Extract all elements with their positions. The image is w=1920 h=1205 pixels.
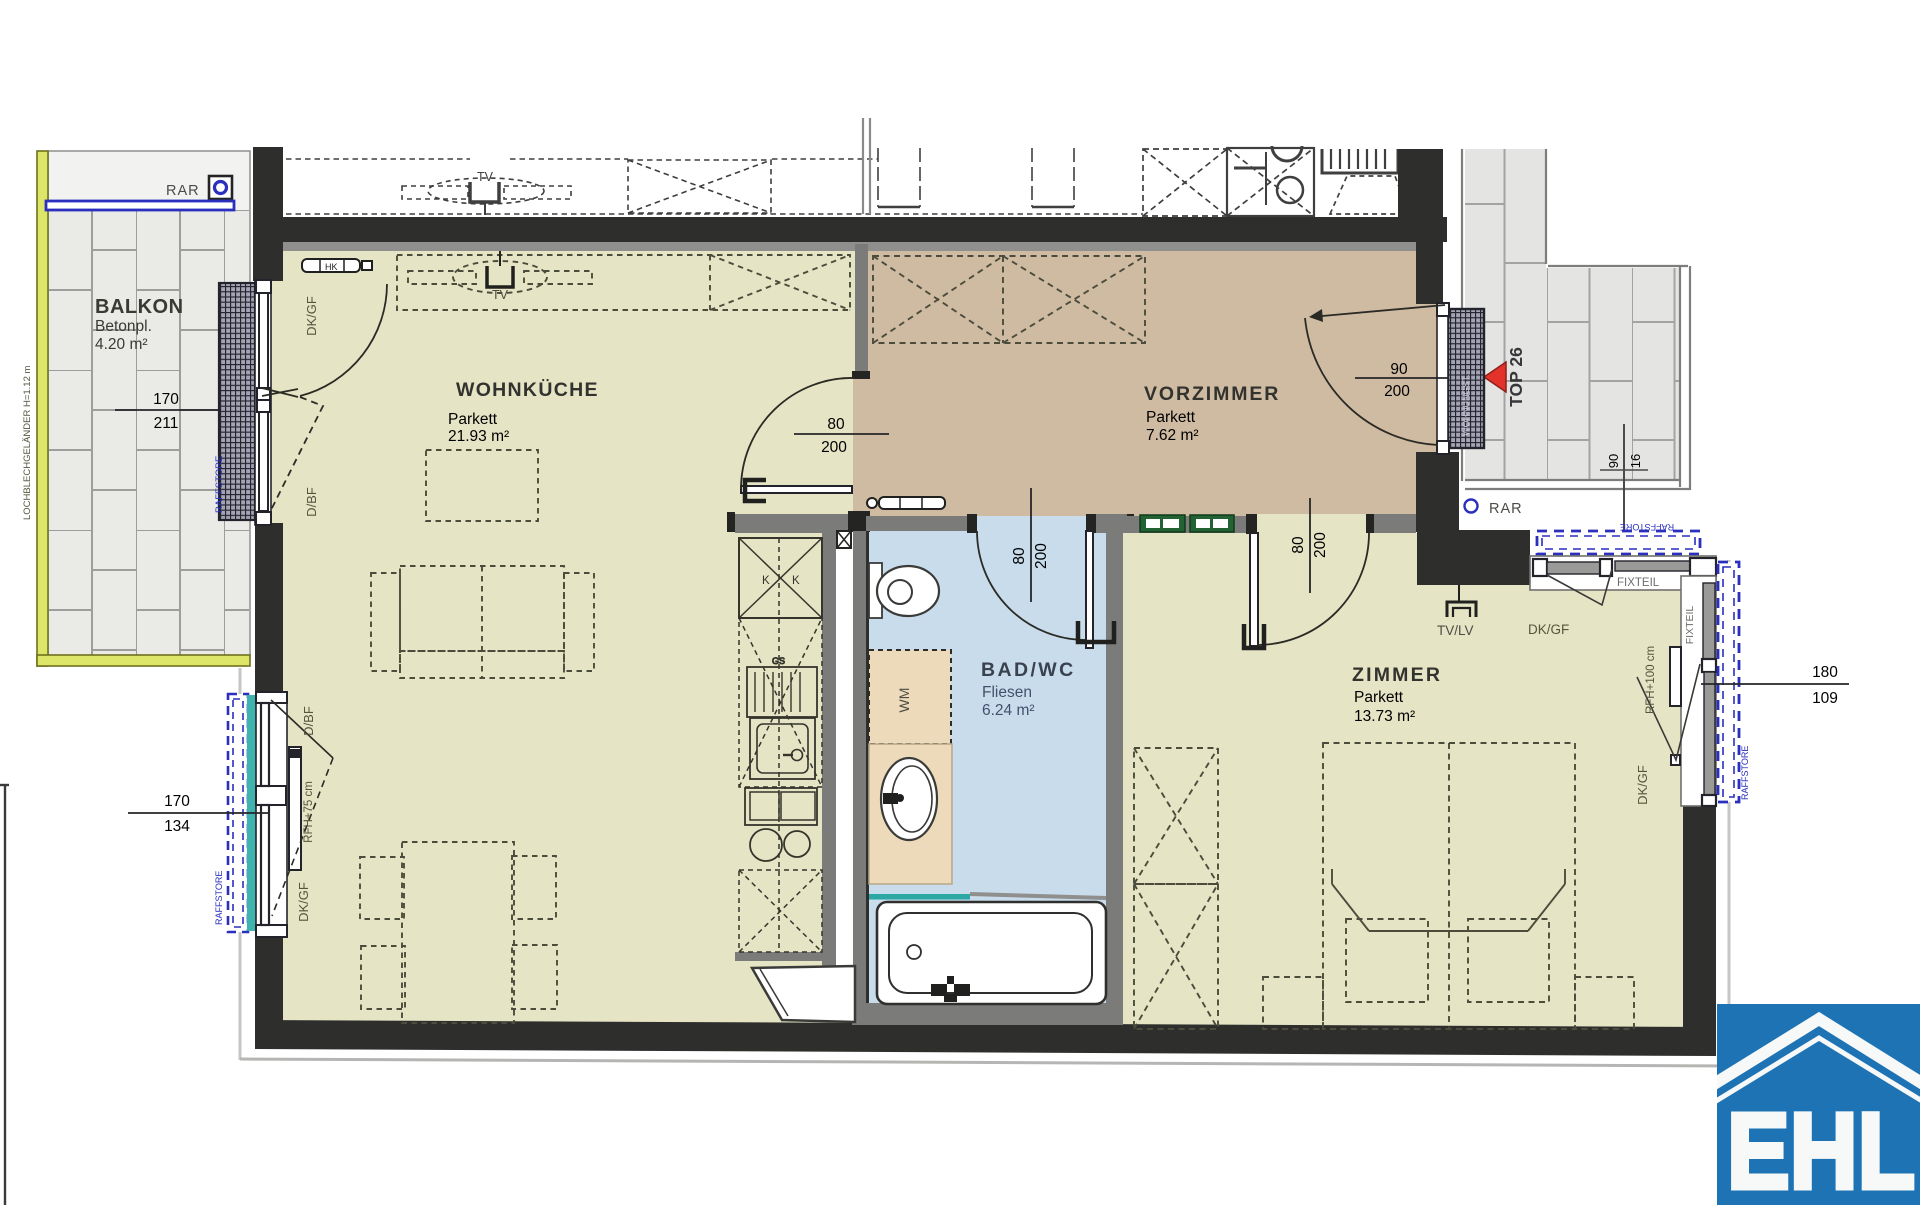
svg-text:LOCHBLECHGELÄNDER H=1.12 m: LOCHBLECHGELÄNDER H=1.12 m: [22, 365, 33, 520]
svg-text:D/BF: D/BF: [304, 487, 319, 517]
svg-text:7.62 m²: 7.62 m²: [1146, 427, 1199, 444]
svg-text:RFH+75 cm: RFH+75 cm: [303, 781, 315, 843]
svg-text:200: 200: [821, 439, 847, 456]
svg-text:Parkett: Parkett: [1146, 409, 1196, 426]
svg-text:BALKON: BALKON: [95, 296, 184, 318]
svg-text:TV: TV: [492, 288, 509, 302]
svg-text:200: 200: [1312, 532, 1329, 558]
svg-text:80: 80: [1290, 536, 1307, 554]
svg-text:HK: HK: [325, 262, 338, 272]
svg-text:RAFFSTORE: RAFFSTORE: [214, 456, 225, 513]
svg-text:200: 200: [1384, 383, 1410, 400]
svg-text:90: 90: [1390, 361, 1408, 378]
svg-text:Parkett: Parkett: [448, 411, 498, 428]
svg-text:134: 134: [164, 818, 190, 835]
svg-text:WM: WM: [896, 688, 912, 713]
svg-text:211: 211: [154, 415, 179, 432]
svg-text:DK/GF: DK/GF: [1635, 765, 1650, 805]
svg-text:Betonpl.: Betonpl.: [95, 318, 152, 335]
svg-text:WOHNKÜCHE: WOHNKÜCHE: [456, 378, 599, 401]
svg-text:90: 90: [1606, 454, 1621, 468]
svg-text:RAR: RAR: [1489, 501, 1523, 517]
svg-text:Parkett: Parkett: [1354, 689, 1404, 706]
svg-text:4.20 m²: 4.20 m²: [95, 336, 148, 353]
svg-text:K: K: [792, 575, 800, 587]
svg-text:TOP 26: TOP 26: [1506, 347, 1526, 407]
svg-text:RFH+100 cm: RFH+100 cm: [1645, 646, 1657, 714]
svg-text:DK/GF: DK/GF: [296, 882, 311, 922]
svg-text:TV/LV: TV/LV: [1437, 623, 1474, 638]
svg-text:170: 170: [153, 391, 179, 408]
svg-text:GS: GS: [772, 656, 785, 666]
svg-text:DK/GF: DK/GF: [304, 296, 319, 336]
svg-text:VORZIMMER: VORZIMMER: [1144, 383, 1280, 405]
svg-text:80: 80: [1011, 547, 1028, 565]
svg-text:FIXTEIL: FIXTEIL: [1617, 577, 1660, 589]
svg-text:180: 180: [1812, 664, 1838, 681]
svg-text:EHL: EHL: [1727, 1090, 1915, 1205]
svg-text:Fliesen: Fliesen: [982, 684, 1032, 701]
svg-text:RAR: RAR: [166, 183, 200, 199]
svg-text:ZIMMER: ZIMMER: [1352, 664, 1442, 686]
svg-text:DK/GF: DK/GF: [1528, 622, 1569, 637]
svg-text:WOHNUNGST.: WOHNUNGST.: [1461, 375, 1471, 437]
svg-text:RAFFSTORE: RAFFSTORE: [1740, 746, 1750, 800]
svg-text:K: K: [762, 575, 770, 587]
svg-text:TV: TV: [477, 170, 494, 184]
svg-text:16: 16: [1628, 454, 1643, 468]
svg-text:80: 80: [827, 416, 845, 433]
svg-text:13.73 m²: 13.73 m²: [1354, 708, 1415, 725]
svg-text:170: 170: [164, 793, 190, 810]
svg-text:BAD/WC: BAD/WC: [981, 659, 1076, 681]
svg-text:RAFFSTORE: RAFFSTORE: [214, 871, 224, 925]
svg-text:200: 200: [1033, 543, 1050, 569]
svg-text:D/BF: D/BF: [301, 706, 316, 736]
svg-text:109: 109: [1812, 690, 1838, 707]
svg-text:RAFFSTORE: RAFFSTORE: [1620, 522, 1674, 532]
svg-text:21.93 m²: 21.93 m²: [448, 428, 509, 445]
svg-text:FIXTEIL: FIXTEIL: [1684, 606, 1696, 645]
svg-text:6.24 m²: 6.24 m²: [982, 702, 1035, 719]
